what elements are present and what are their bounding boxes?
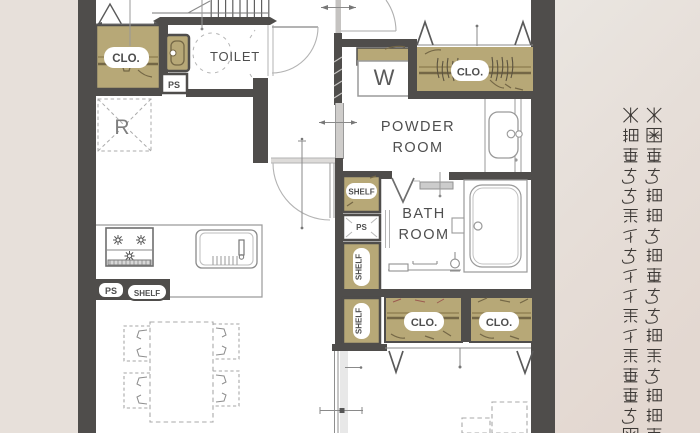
- svg-text:ROOM: ROOM: [398, 227, 449, 243]
- svg-text:W: W: [374, 65, 395, 90]
- svg-text:PS: PS: [168, 80, 180, 90]
- svg-text:TOILET: TOILET: [210, 49, 260, 64]
- svg-text:CLO.: CLO.: [457, 67, 483, 79]
- svg-text:ROOM: ROOM: [392, 140, 443, 156]
- svg-text:SHELF: SHELF: [134, 289, 160, 298]
- svg-text:PS: PS: [105, 286, 117, 296]
- svg-text:SHELF: SHELF: [355, 308, 364, 334]
- svg-text:CLO.: CLO.: [112, 53, 139, 65]
- svg-text:BATH: BATH: [402, 206, 446, 222]
- svg-text:CLO.: CLO.: [486, 317, 512, 329]
- svg-text:SHELF: SHELF: [355, 254, 364, 280]
- svg-text:R: R: [114, 116, 129, 139]
- svg-text:POWDER: POWDER: [381, 119, 455, 135]
- svg-text:SHELF: SHELF: [348, 188, 374, 197]
- svg-text:PS: PS: [356, 223, 367, 232]
- svg-text:CLO.: CLO.: [411, 317, 437, 329]
